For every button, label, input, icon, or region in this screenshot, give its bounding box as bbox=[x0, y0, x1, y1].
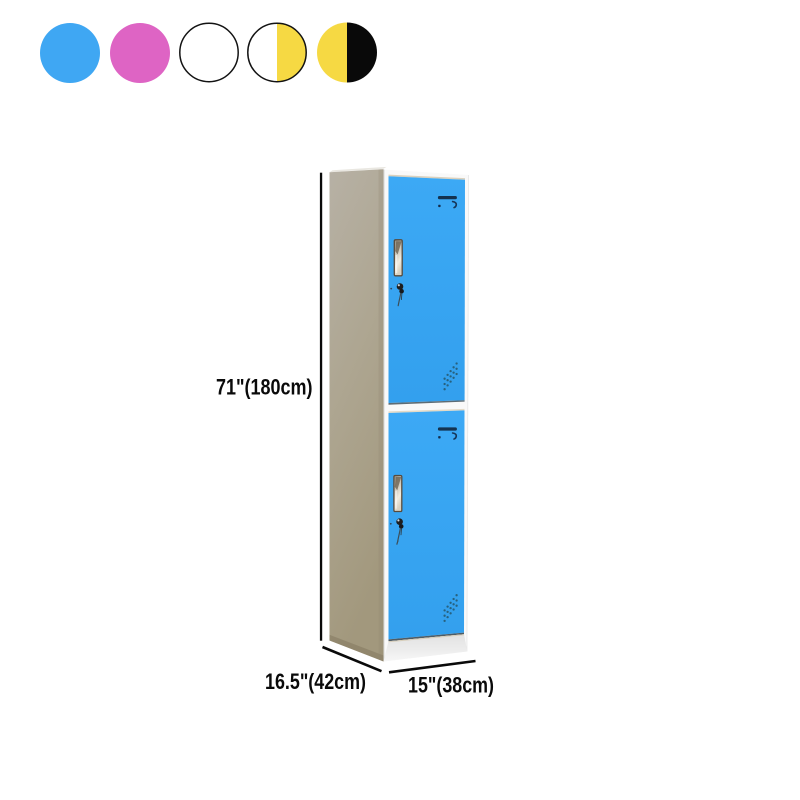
svg-text:16.5"(42cm): 16.5"(42cm) bbox=[265, 669, 366, 694]
svg-text:15"(38cm): 15"(38cm) bbox=[408, 673, 494, 698]
svg-text:71"(180cm): 71"(180cm) bbox=[216, 375, 313, 400]
